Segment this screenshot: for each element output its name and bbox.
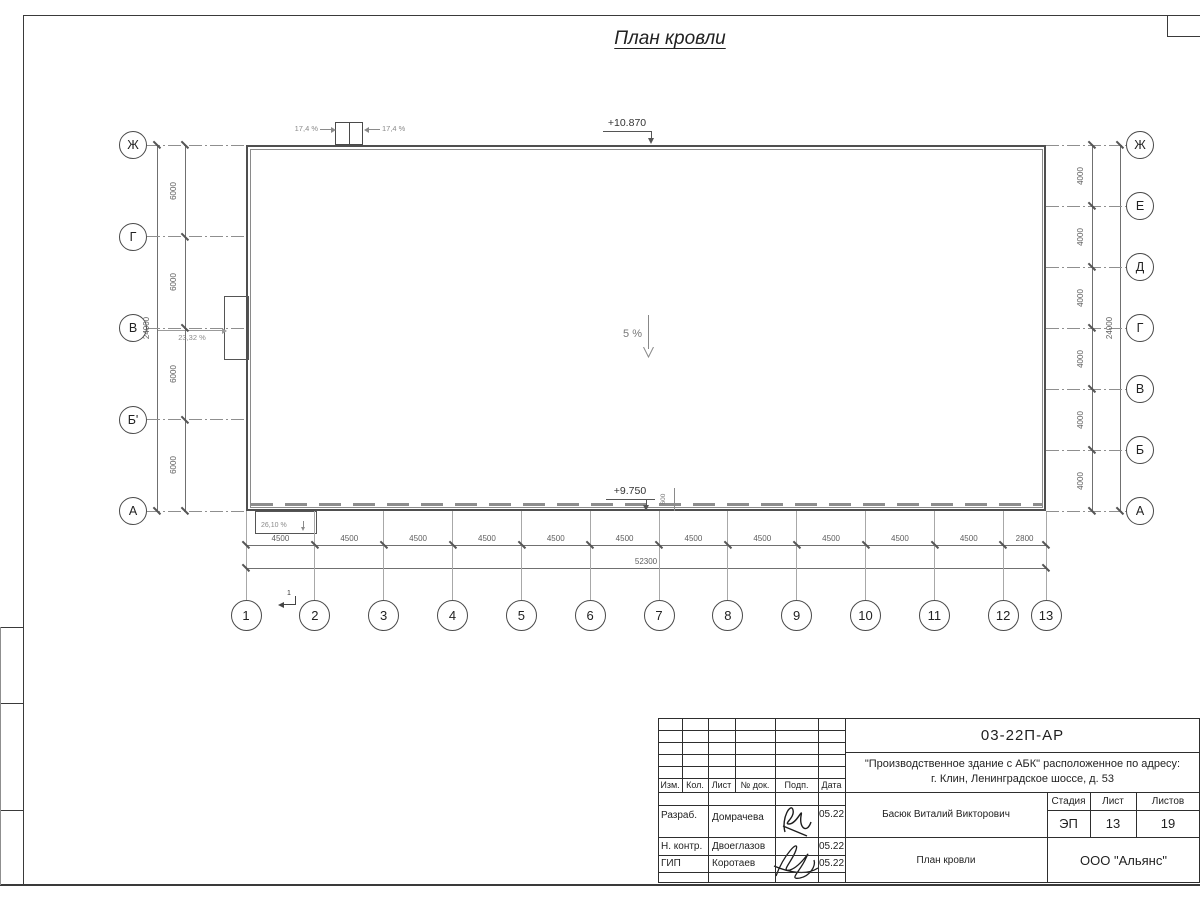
row-gip-role: ГИП bbox=[659, 855, 713, 872]
project-line2: г. Клин, Ленинградское шоссе, д. 53 bbox=[931, 772, 1114, 787]
stage-label: Стадия bbox=[1047, 792, 1090, 810]
title-block-line-v bbox=[735, 718, 736, 792]
approver-name: Басюк Виталий Викторович bbox=[845, 792, 1047, 837]
row-ncontrol-role: Н. контр. bbox=[659, 838, 713, 855]
title-block-line-h bbox=[658, 742, 845, 743]
title-block-line-h bbox=[845, 752, 1200, 753]
row-ncontrol-name: Двоеглазов bbox=[710, 838, 776, 855]
title-block-line-h bbox=[658, 855, 845, 856]
title-block-line-h bbox=[658, 766, 845, 767]
col-list: Лист bbox=[708, 778, 735, 792]
title-block-line-h bbox=[658, 872, 845, 873]
title-block: 03-22П-АР "Производственное здание с АБК… bbox=[0, 0, 1200, 900]
col-ndok: № док. bbox=[735, 778, 775, 792]
row-developer-role: Разраб. bbox=[659, 805, 709, 825]
title-block-line-v bbox=[1047, 792, 1048, 883]
title-block-line-h bbox=[658, 730, 845, 731]
title-block-line-h bbox=[658, 754, 845, 755]
title-block-line-h bbox=[658, 805, 845, 806]
project-description: "Производственное здание с АБК" располож… bbox=[845, 752, 1200, 792]
row-developer-name: Домрачева bbox=[710, 807, 776, 827]
doc-number: 03-22П-АР bbox=[845, 719, 1200, 751]
sheet-label: Лист bbox=[1090, 792, 1136, 810]
title-block-line-v bbox=[818, 718, 819, 883]
sheets-value: 19 bbox=[1136, 810, 1200, 837]
row-gip-date: 05.22 bbox=[818, 855, 845, 872]
row-gip-name: Коротаев bbox=[710, 855, 776, 872]
row-ncontrol-date: 05.22 bbox=[818, 838, 845, 855]
title-block-line-h bbox=[658, 837, 1200, 838]
col-podp: Подп. bbox=[775, 778, 818, 792]
title-block-line-h bbox=[1047, 810, 1200, 811]
company-name: ООО "Альянс" bbox=[1047, 837, 1200, 883]
title-block-line-v bbox=[682, 718, 683, 792]
title-block-line-h bbox=[658, 792, 1200, 793]
stage-value: ЭП bbox=[1047, 810, 1090, 837]
signature-ncontrol-gip bbox=[770, 836, 822, 882]
col-data: Дата bbox=[818, 778, 845, 792]
sheet-value: 13 bbox=[1090, 810, 1136, 837]
drawing-sheet: План кровли 17,4 % 17,4 % +10.870 5 % +9… bbox=[0, 0, 1200, 900]
title-block-line-v bbox=[708, 718, 709, 883]
title-block-line-v bbox=[1136, 792, 1137, 837]
row-developer-date: 05.22 bbox=[818, 806, 845, 822]
title-block-line-v bbox=[845, 718, 846, 883]
title-block-line-h bbox=[658, 778, 845, 779]
col-kol: Кол. bbox=[682, 778, 708, 792]
col-izm: Изм. bbox=[658, 778, 682, 792]
title-block-line-v bbox=[775, 718, 776, 883]
sheets-label: Листов bbox=[1136, 792, 1200, 810]
drawing-name: План кровли bbox=[845, 837, 1047, 883]
title-block-line-v bbox=[1090, 792, 1091, 837]
project-line1: "Производственное здание с АБК" располож… bbox=[865, 757, 1180, 772]
